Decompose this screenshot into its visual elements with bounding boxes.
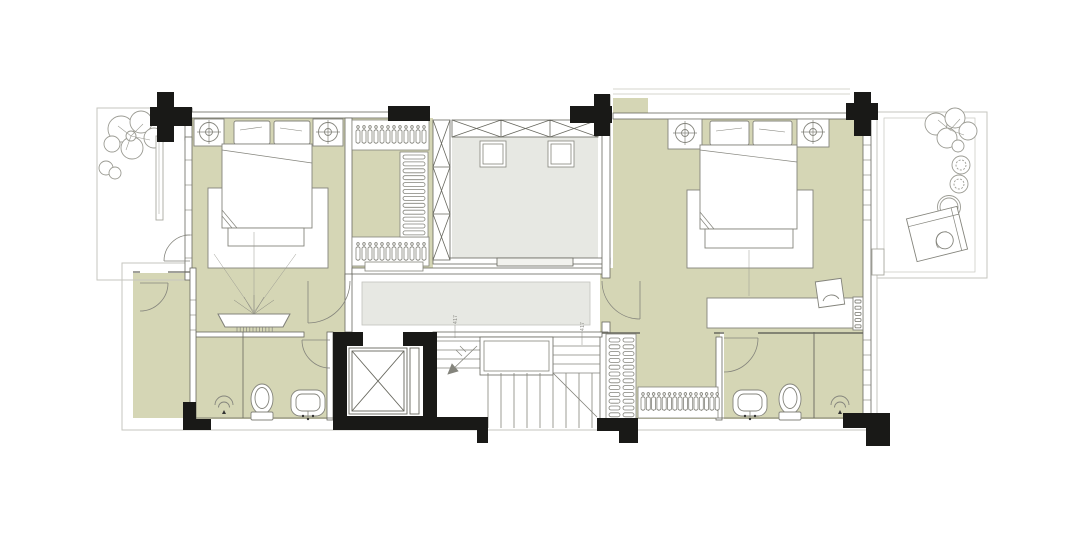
void-room-floor — [452, 137, 598, 259]
lounge-chair — [906, 206, 967, 261]
flower-pot — [952, 156, 970, 174]
dimension-text: 417 — [580, 322, 586, 331]
bedroom-closet-wall — [345, 118, 352, 280]
pillow — [274, 121, 310, 144]
column — [388, 106, 430, 121]
corridor-bridge — [362, 282, 590, 325]
staircase — [437, 337, 600, 428]
column — [597, 418, 638, 443]
left-bedroom-window-wall — [185, 137, 192, 280]
dimension-text: 417 — [453, 315, 459, 324]
toilet-icon — [779, 384, 801, 420]
desk-chair — [815, 278, 844, 307]
elevator-door-opening — [363, 332, 403, 346]
right-window-wall — [863, 113, 871, 420]
pillow — [710, 121, 749, 145]
pillow — [234, 121, 270, 144]
floor-plan-drawing: 417 417 — [0, 0, 1080, 540]
low-cabinet — [365, 262, 423, 271]
right-terrace — [872, 108, 977, 275]
column — [437, 417, 488, 443]
wall-ledge — [872, 249, 884, 275]
planter — [156, 136, 163, 220]
bush — [925, 108, 977, 152]
toilet-icon — [251, 384, 273, 420]
bed — [700, 145, 797, 229]
floor-plan-canvas: 417 417 — [0, 0, 1080, 540]
flower-pot — [950, 175, 968, 193]
shrub — [99, 161, 121, 179]
bench — [705, 229, 793, 248]
pillow — [753, 121, 792, 145]
bench — [228, 228, 304, 246]
left-terrace — [99, 111, 164, 220]
elevator — [333, 332, 437, 430]
